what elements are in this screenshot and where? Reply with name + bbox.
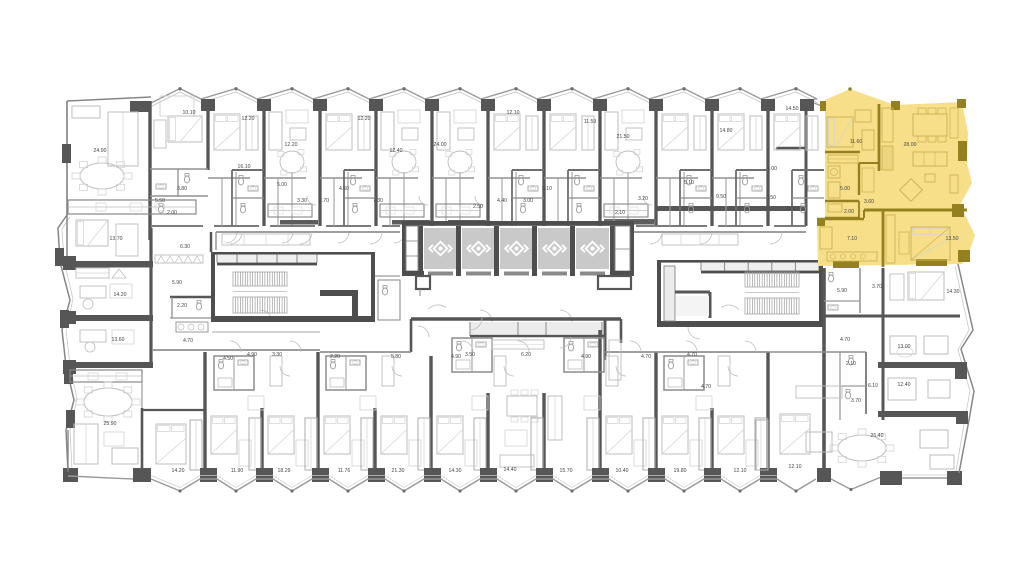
svg-text:4.70: 4.70 <box>641 354 651 360</box>
svg-text:4.70: 4.70 <box>840 337 850 343</box>
svg-text:14.40: 14.40 <box>504 467 517 473</box>
svg-text:3.00: 3.00 <box>523 198 533 204</box>
svg-text:10.10: 10.10 <box>183 110 196 116</box>
svg-text:4.90: 4.90 <box>247 352 257 358</box>
svg-text:4.70: 4.70 <box>183 338 193 344</box>
svg-text:3.20: 3.20 <box>638 196 648 202</box>
svg-text:3.50: 3.50 <box>465 352 475 358</box>
svg-text:9.50: 9.50 <box>716 194 726 200</box>
svg-text:14.30: 14.30 <box>947 289 960 295</box>
svg-text:3.30: 3.30 <box>297 198 307 204</box>
svg-text:2.00: 2.00 <box>167 210 177 216</box>
svg-text:14.20: 14.20 <box>114 292 127 298</box>
svg-text:5.90: 5.90 <box>172 280 182 286</box>
svg-text:7.10: 7.10 <box>847 236 857 242</box>
svg-text:3.60: 3.60 <box>864 199 874 205</box>
svg-text:11.60: 11.60 <box>850 139 863 145</box>
svg-text:5.00: 5.00 <box>277 182 287 188</box>
svg-text:12.10: 12.10 <box>507 110 520 116</box>
svg-text:11.59: 11.59 <box>584 119 597 125</box>
svg-text:12.40: 12.40 <box>390 148 403 154</box>
svg-text:5.50: 5.50 <box>155 198 165 204</box>
svg-text:18.29: 18.29 <box>278 468 291 474</box>
svg-text:26.40: 26.40 <box>871 433 884 439</box>
svg-text:13.60: 13.60 <box>112 337 125 343</box>
svg-text:13.70: 13.70 <box>110 236 123 242</box>
svg-text:5.90: 5.90 <box>837 288 847 294</box>
svg-text:14.30: 14.30 <box>449 468 462 474</box>
svg-text:4.60: 4.60 <box>339 186 349 192</box>
svg-text:2.50: 2.50 <box>766 195 776 201</box>
svg-text:14.80: 14.80 <box>720 128 733 134</box>
svg-text:15.70: 15.70 <box>560 468 573 474</box>
svg-text:4.90: 4.90 <box>451 354 461 360</box>
svg-text:11.90: 11.90 <box>231 468 244 474</box>
svg-text:6.20: 6.20 <box>521 352 531 358</box>
svg-text:12.40: 12.40 <box>898 382 911 388</box>
svg-text:2.70: 2.70 <box>319 198 329 204</box>
svg-text:21.30: 21.30 <box>392 468 405 474</box>
svg-text:3.70: 3.70 <box>872 284 882 290</box>
svg-text:16.10: 16.10 <box>238 164 251 170</box>
svg-text:5.80: 5.80 <box>391 354 401 360</box>
svg-text:28.00: 28.00 <box>904 142 917 148</box>
svg-text:3.70: 3.70 <box>851 398 861 404</box>
svg-text:4.70: 4.70 <box>687 352 697 358</box>
svg-text:7.30: 7.30 <box>373 198 383 204</box>
svg-text:6.30: 6.30 <box>180 244 190 250</box>
svg-text:2.10: 2.10 <box>615 210 625 216</box>
svg-text:5.00: 5.00 <box>840 186 850 192</box>
svg-text:6.10: 6.10 <box>868 383 878 389</box>
svg-text:4.70: 4.70 <box>701 384 711 390</box>
svg-text:3.30: 3.30 <box>272 352 282 358</box>
svg-text:11.76: 11.76 <box>338 468 351 474</box>
svg-text:5.10: 5.10 <box>542 186 552 192</box>
svg-text:2.10: 2.10 <box>846 361 856 367</box>
svg-text:4.40: 4.40 <box>497 198 507 204</box>
svg-text:25.90: 25.90 <box>104 421 117 427</box>
svg-text:10.40: 10.40 <box>616 468 629 474</box>
svg-text:3.80: 3.80 <box>786 206 796 212</box>
svg-text:4.50: 4.50 <box>223 356 233 362</box>
svg-text:24.90: 24.90 <box>94 148 107 154</box>
svg-text:3.80: 3.80 <box>177 186 187 192</box>
svg-text:24.00: 24.00 <box>434 142 447 148</box>
svg-text:12.20: 12.20 <box>358 116 371 122</box>
svg-text:12.20: 12.20 <box>242 116 255 122</box>
svg-text:14.50: 14.50 <box>786 106 799 112</box>
svg-text:21.50: 21.50 <box>617 134 630 140</box>
svg-text:13.00: 13.00 <box>898 344 911 350</box>
svg-text:2.00: 2.00 <box>844 209 854 215</box>
svg-text:14.20: 14.20 <box>172 468 185 474</box>
svg-text:2.50: 2.50 <box>473 204 483 210</box>
svg-text:19.80: 19.80 <box>674 468 687 474</box>
svg-text:2.20: 2.20 <box>177 303 187 309</box>
svg-text:8.00: 8.00 <box>767 166 777 172</box>
svg-text:4.90: 4.90 <box>581 354 591 360</box>
svg-text:5.10: 5.10 <box>684 180 694 186</box>
svg-text:12.20: 12.20 <box>285 142 298 148</box>
svg-text:13.50: 13.50 <box>946 236 959 242</box>
svg-text:12.10: 12.10 <box>789 464 802 470</box>
svg-text:2.20: 2.20 <box>330 354 340 360</box>
svg-text:12.10: 12.10 <box>734 468 747 474</box>
